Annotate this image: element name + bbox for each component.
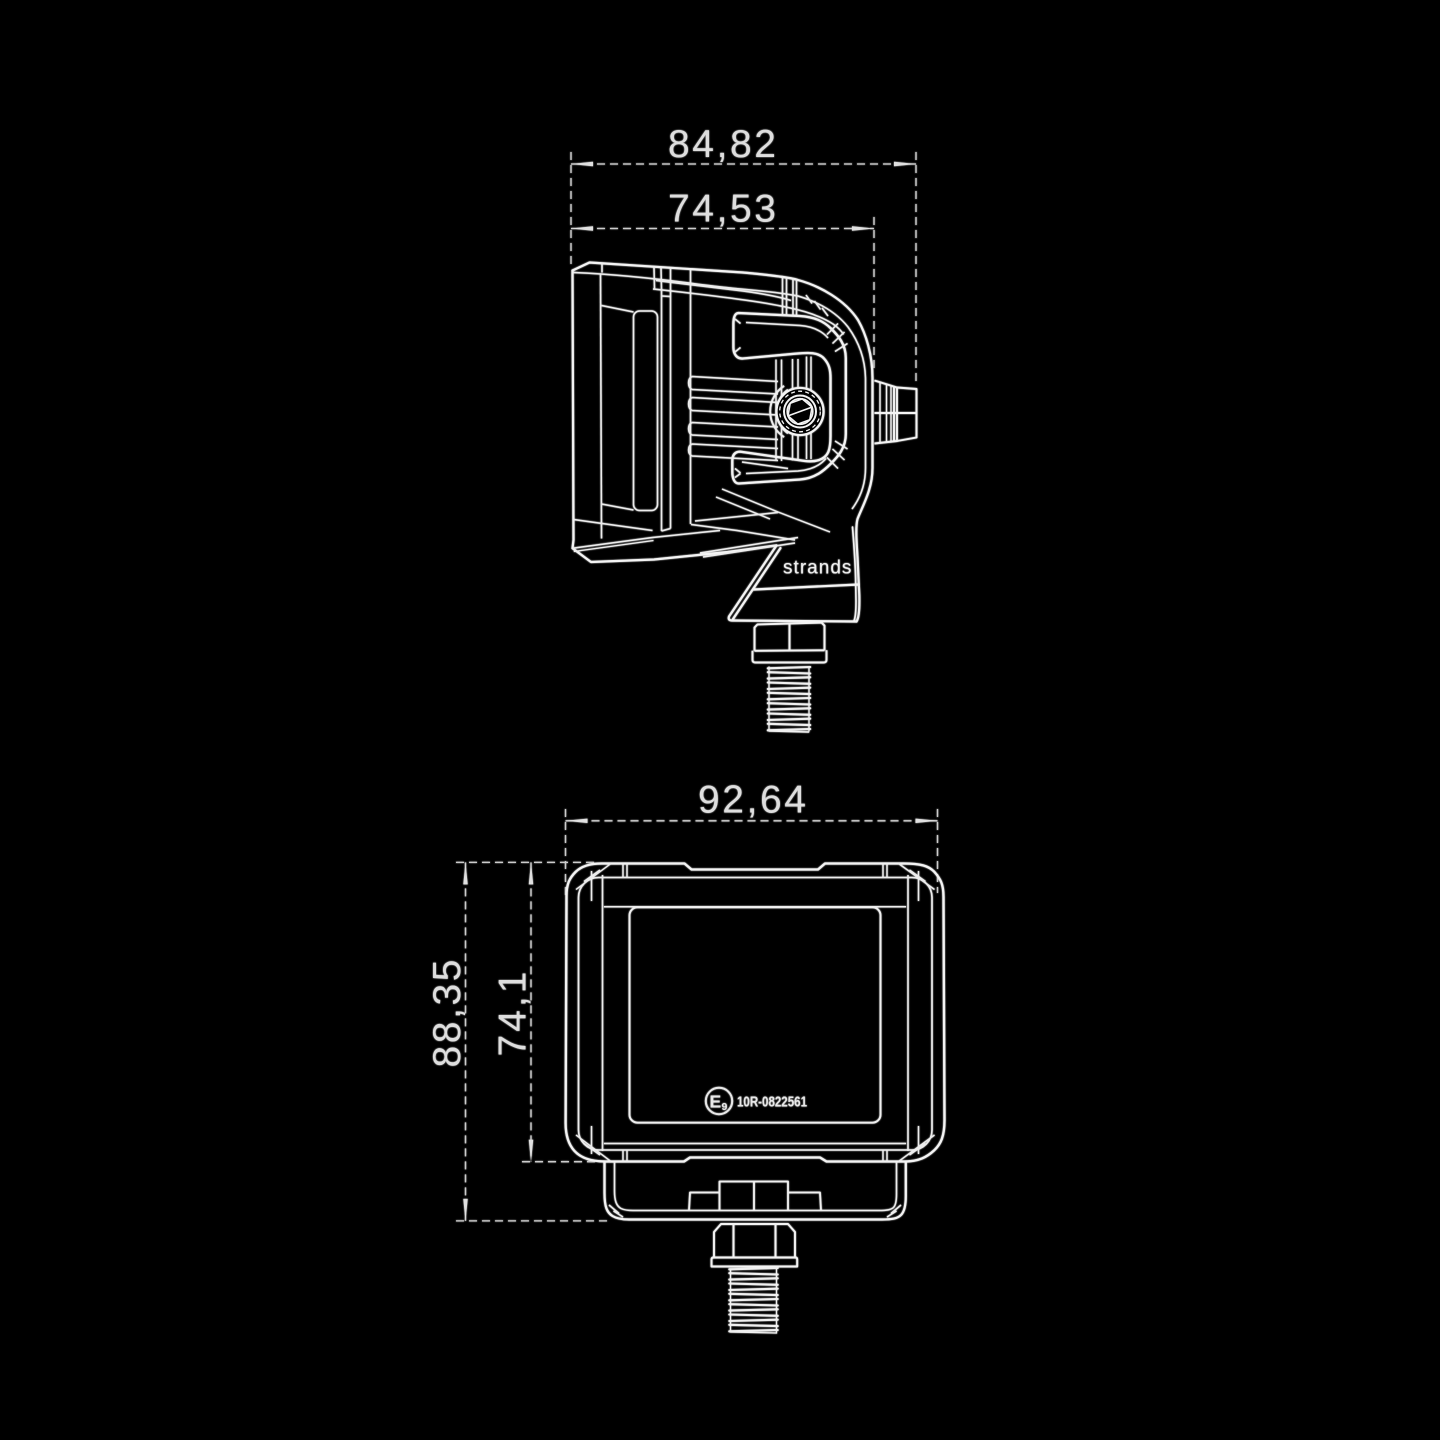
svg-text:74,1: 74,1 <box>492 972 535 1057</box>
svg-text:84,82: 84,82 <box>668 123 776 166</box>
svg-text:74,53: 74,53 <box>668 188 776 231</box>
svg-text:10R-0822561: 10R-0822561 <box>737 1094 807 1111</box>
svg-text:88,35: 88,35 <box>426 960 469 1068</box>
svg-text:92,64: 92,64 <box>698 779 806 822</box>
svg-text:strands: strands <box>783 558 852 579</box>
svg-text:9: 9 <box>722 1101 728 1113</box>
svg-text:E: E <box>710 1092 722 1112</box>
